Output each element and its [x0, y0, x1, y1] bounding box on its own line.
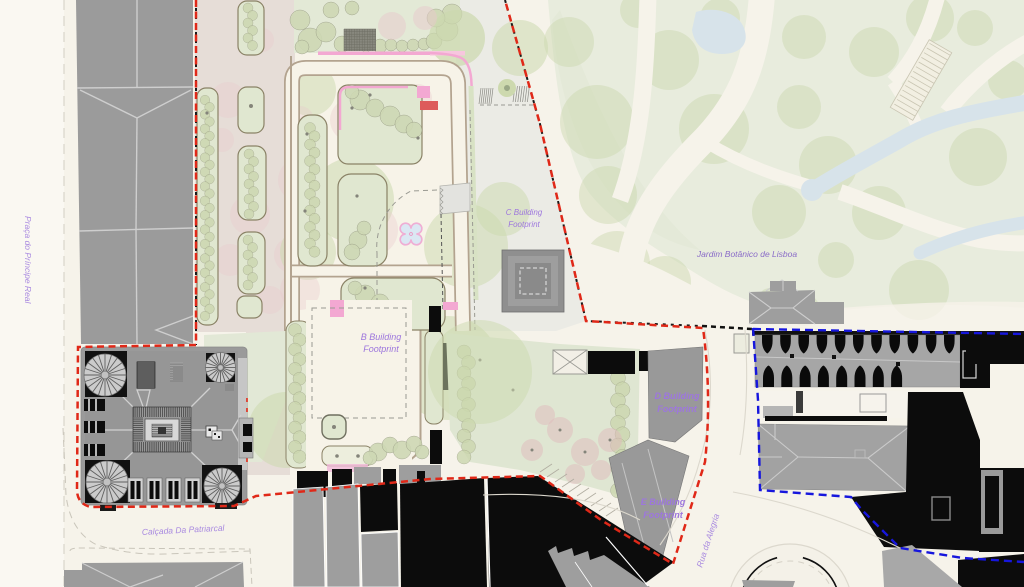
svg-text:Jardim Botânico de Lisboa: Jardim Botânico de Lisboa — [696, 249, 797, 259]
svg-text:Footprint: Footprint — [657, 404, 697, 414]
svg-text:Praça do Príncipe Real: Praça do Príncipe Real — [23, 216, 33, 305]
svg-text:Footprint: Footprint — [643, 510, 683, 520]
svg-text:B Building: B Building — [361, 332, 402, 342]
svg-text:Footprint: Footprint — [363, 344, 399, 354]
svg-text:C Building: C Building — [506, 208, 543, 217]
svg-text:E Building: E Building — [641, 497, 686, 507]
svg-text:Footprint: Footprint — [508, 220, 540, 229]
svg-text:D Building: D Building — [655, 391, 700, 401]
